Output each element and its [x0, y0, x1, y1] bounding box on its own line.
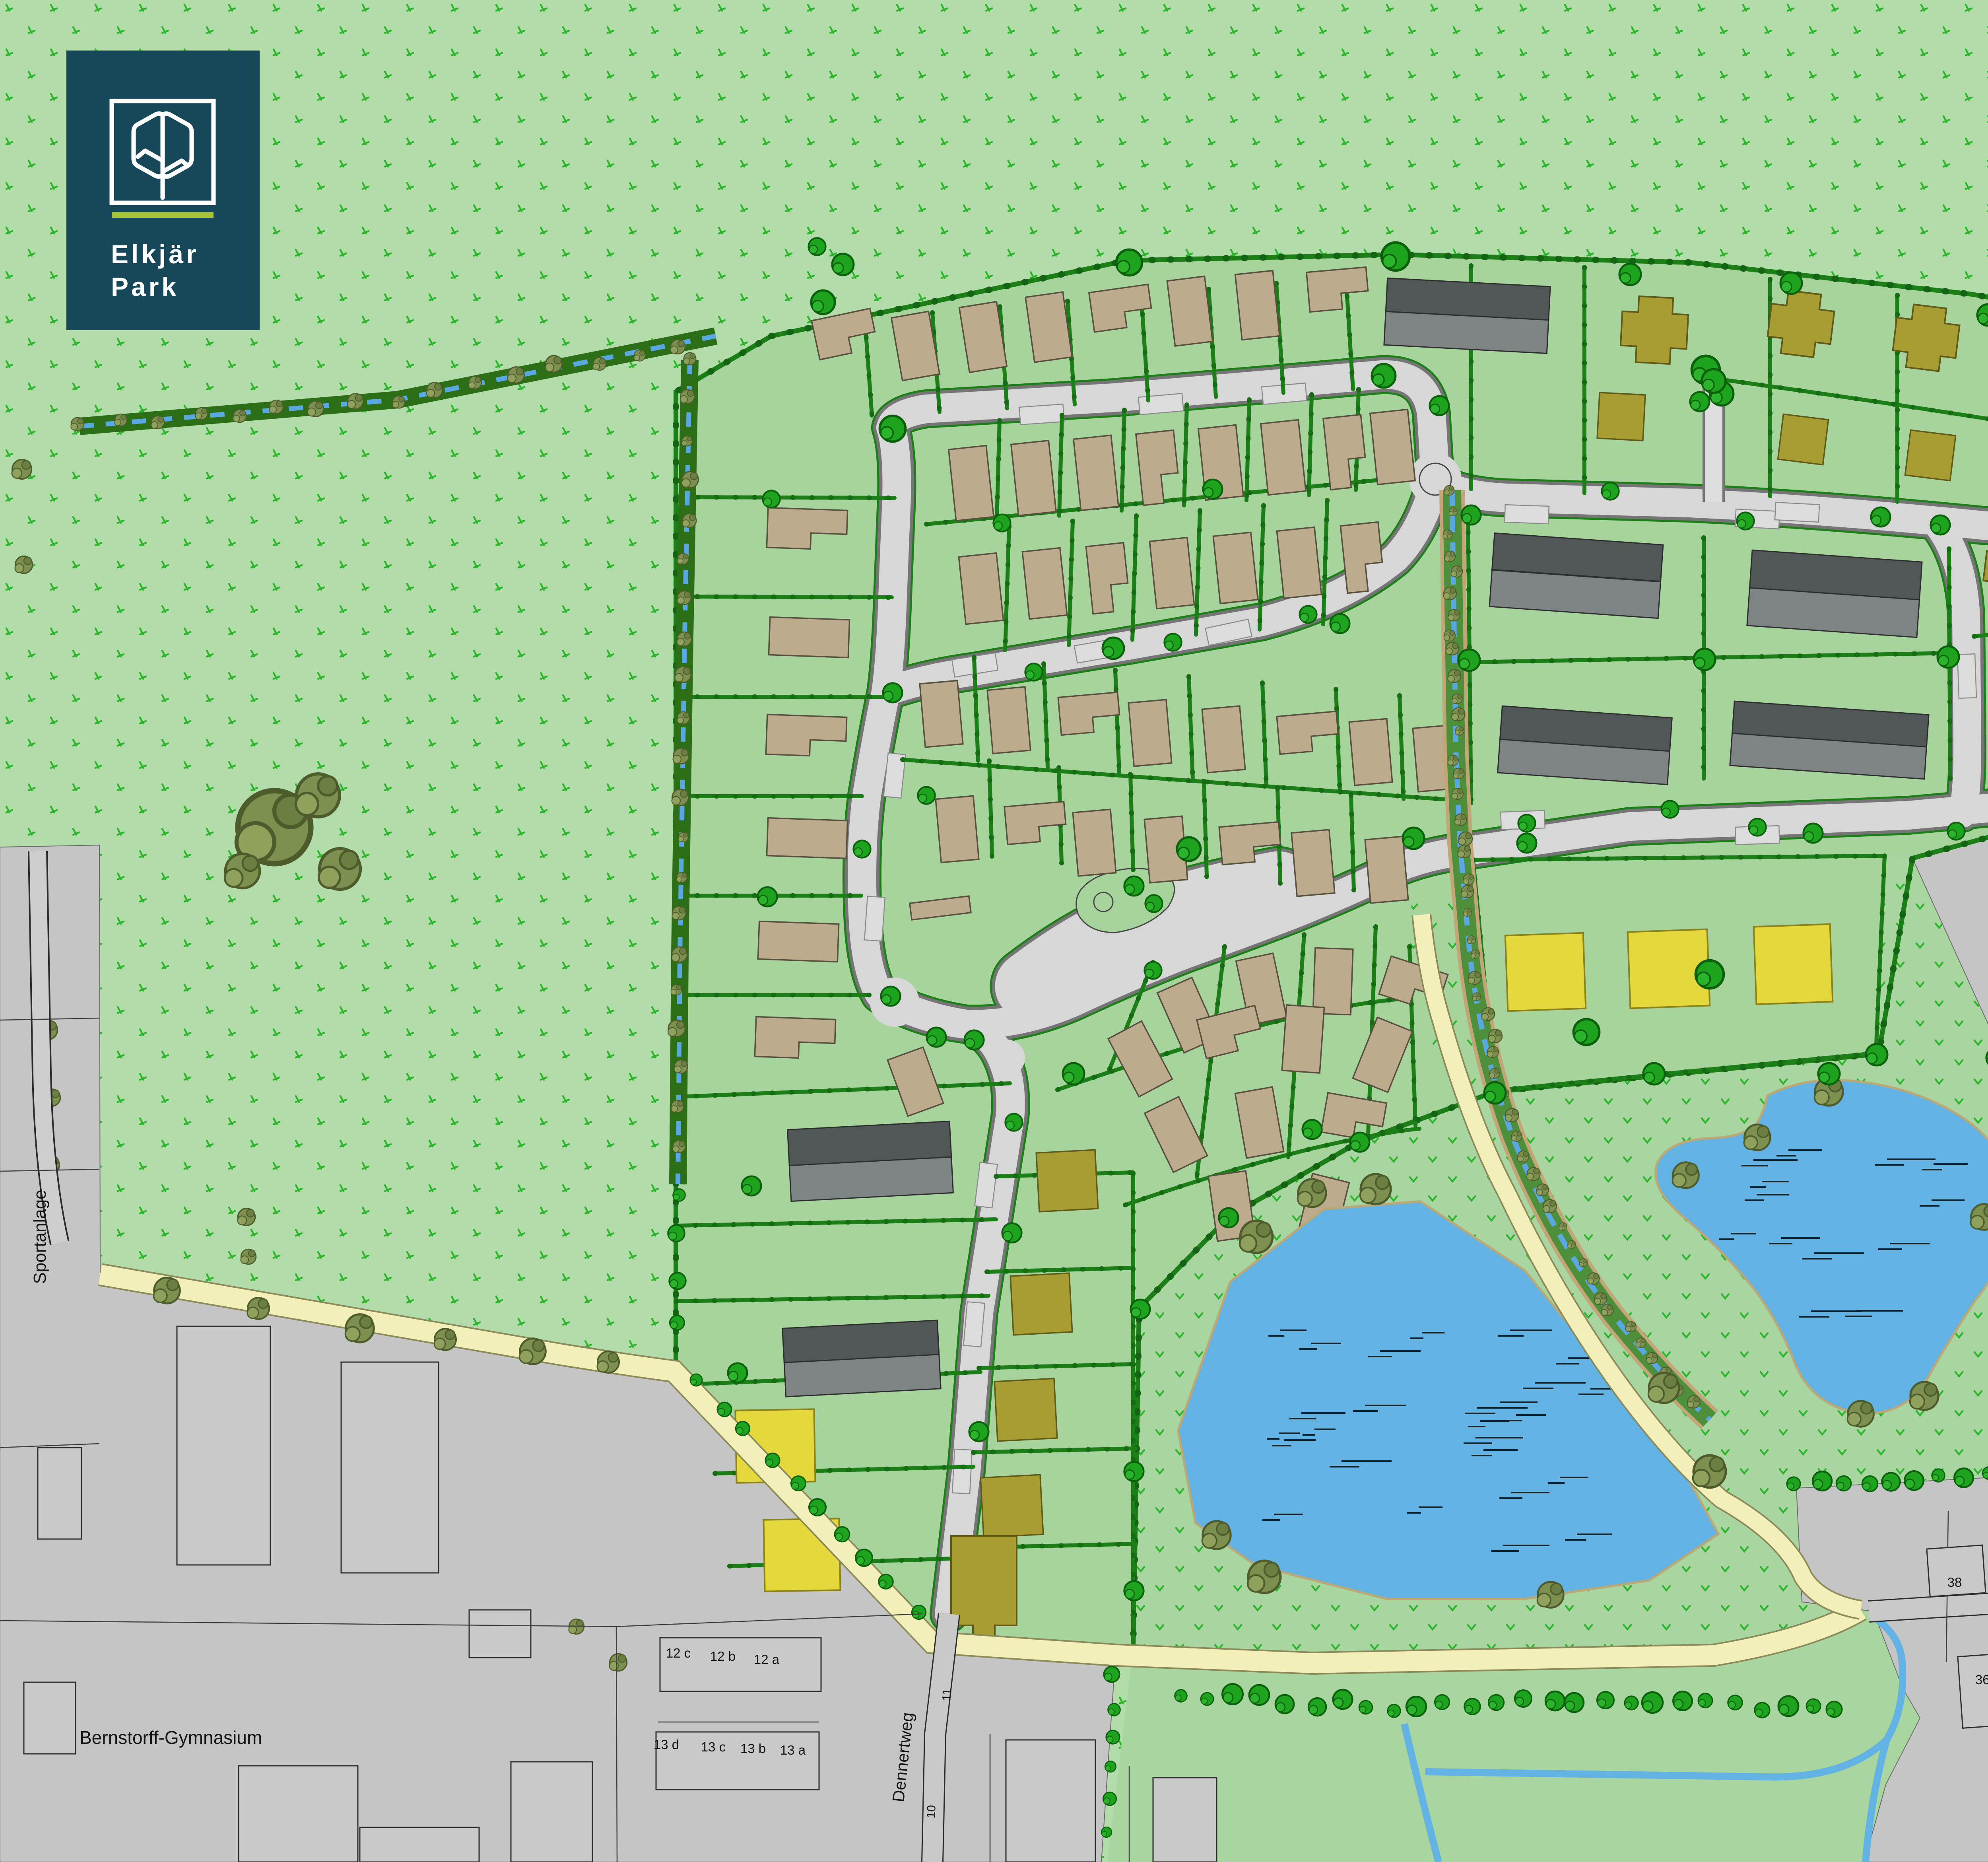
svg-text:12 b: 12 b: [710, 1649, 736, 1664]
svg-text:13 c: 13 c: [701, 1740, 726, 1754]
svg-text:Elkjär: Elkjär: [111, 239, 199, 269]
svg-text:Bernstorff-Gymnasium: Bernstorff-Gymnasium: [80, 1727, 262, 1748]
svg-text:11: 11: [940, 1688, 954, 1701]
svg-text:12 c: 12 c: [666, 1646, 691, 1660]
svg-text:Sportanlage: Sportanlage: [30, 1190, 50, 1284]
svg-text:12 a: 12 a: [754, 1652, 780, 1667]
svg-text:13 a: 13 a: [780, 1743, 806, 1757]
svg-text:Park: Park: [111, 272, 179, 301]
svg-text:13 d: 13 d: [654, 1737, 679, 1752]
svg-text:38: 38: [1947, 1575, 1962, 1590]
svg-text:13 b: 13 b: [740, 1741, 766, 1756]
svg-text:36 a: 36 a: [1975, 1672, 1988, 1687]
svg-text:10: 10: [924, 1805, 938, 1819]
